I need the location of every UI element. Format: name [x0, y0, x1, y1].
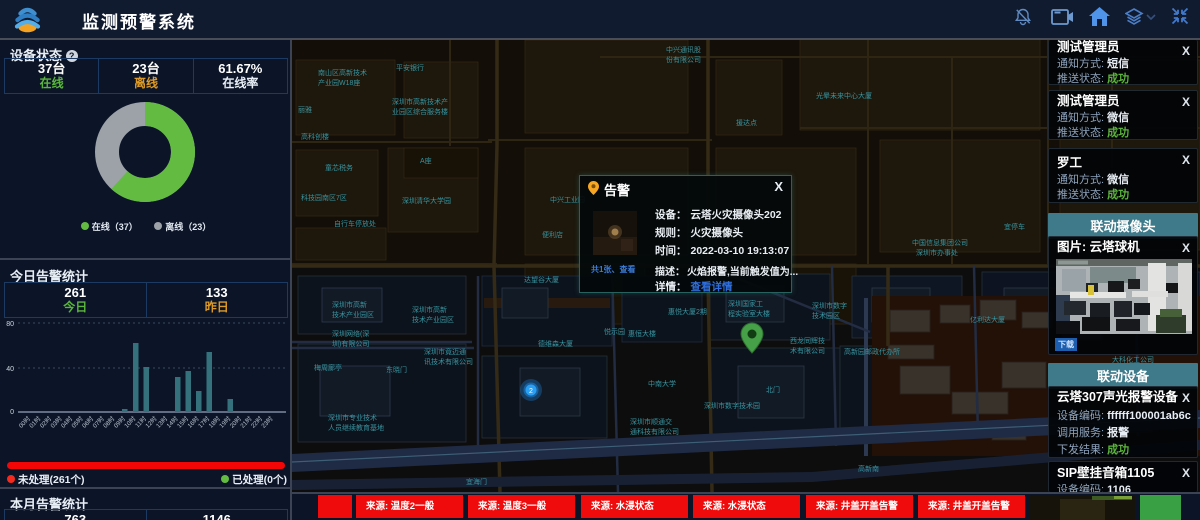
svg-text:高新园邮政代办所: 高新园邮政代办所 [844, 347, 900, 356]
svg-text:深圳市高新: 深圳市高新 [332, 300, 367, 309]
svg-text:中国信息集团公司: 中国信息集团公司 [912, 238, 968, 247]
svg-text:高科创楼: 高科创楼 [301, 132, 329, 141]
svg-text:技术园区: 技术园区 [812, 311, 840, 320]
svg-text:深圳国家工: 深圳国家工 [728, 299, 763, 308]
svg-text:平安银行: 平安银行 [396, 63, 424, 72]
svg-text:80: 80 [6, 321, 14, 328]
svg-text:深圳市数字: 深圳市数字 [812, 301, 847, 310]
svg-text:深圳市办事处: 深圳市办事处 [916, 248, 958, 257]
svg-text:深圳清华大学园: 深圳清华大学园 [402, 196, 451, 205]
svg-text:援达点: 援达点 [736, 118, 757, 127]
svg-text:程实验室大楼: 程实验室大楼 [728, 309, 770, 318]
svg-text:深圳市高新: 深圳市高新 [412, 305, 447, 314]
svg-text:A座: A座 [420, 156, 432, 165]
svg-text:0: 0 [10, 409, 14, 416]
svg-text:亿利达大厦: 亿利达大厦 [970, 315, 1005, 324]
svg-text:西龙同辉技: 西龙同辉技 [790, 336, 825, 345]
svg-text:便利店: 便利店 [542, 230, 563, 239]
svg-text:深圳市数字技术园: 深圳市数字技术园 [704, 401, 760, 410]
svg-text:自行车停放处: 自行车停放处 [334, 219, 376, 228]
svg-text:术有限公司: 术有限公司 [790, 346, 825, 355]
svg-text:宜海门: 宜海门 [466, 477, 487, 486]
svg-text:深圳网络(深: 深圳网络(深 [332, 329, 369, 338]
svg-text:科技园南区7区: 科技园南区7区 [301, 193, 347, 202]
svg-text:2: 2 [529, 388, 533, 395]
svg-text:丽雅: 丽雅 [298, 105, 312, 114]
svg-text:产业园W18座: 产业园W18座 [318, 78, 360, 87]
svg-text:人员继续教育基地: 人员继续教育基地 [328, 423, 384, 432]
svg-text:技术产业园区: 技术产业园区 [332, 310, 374, 319]
svg-text:南山区高新技术: 南山区高新技术 [318, 68, 367, 77]
svg-text:梅周廊亭: 梅周廊亭 [314, 363, 342, 372]
svg-text:德维森大厦: 德维森大厦 [538, 339, 573, 348]
svg-text:高新南: 高新南 [858, 464, 879, 473]
svg-text:深圳市专业技术: 深圳市专业技术 [328, 413, 377, 422]
svg-text:中兴通讯股: 中兴通讯股 [666, 45, 701, 54]
svg-text:深圳市顺通交: 深圳市顺通交 [630, 417, 672, 426]
svg-text:悦示园: 悦示园 [604, 327, 625, 336]
svg-text:业园区综合服务楼: 业园区综合服务楼 [392, 107, 448, 116]
svg-text:东晓门: 东晓门 [386, 365, 407, 374]
svg-text:童芯税务: 童芯税务 [325, 163, 353, 172]
svg-text:光晕未来中心大厦: 光晕未来中心大厦 [816, 91, 872, 100]
svg-text:23时: 23时 [260, 415, 275, 430]
svg-text:深圳市竟迈通: 深圳市竟迈通 [424, 347, 466, 356]
svg-text:惠恒大楼: 惠恒大楼 [628, 329, 656, 338]
svg-text:份有限公司: 份有限公司 [666, 55, 701, 64]
svg-text:通科技有限公司: 通科技有限公司 [630, 427, 679, 436]
svg-text:达望谷大厦: 达望谷大厦 [524, 275, 559, 284]
svg-text:深圳市高新技术产: 深圳市高新技术产 [392, 97, 448, 106]
svg-text:40: 40 [6, 366, 14, 373]
svg-text:技术产业园区: 技术产业园区 [412, 315, 454, 324]
svg-text:中南大学: 中南大学 [648, 379, 676, 388]
svg-text:宜停车: 宜停车 [1004, 222, 1025, 231]
svg-text:讯技术有限公司: 讯技术有限公司 [424, 357, 473, 366]
svg-text:北门: 北门 [766, 385, 780, 394]
svg-text:惠悦大厦2期: 惠悦大厦2期 [668, 307, 707, 316]
svg-text:圳)有限公司: 圳)有限公司 [332, 339, 369, 348]
